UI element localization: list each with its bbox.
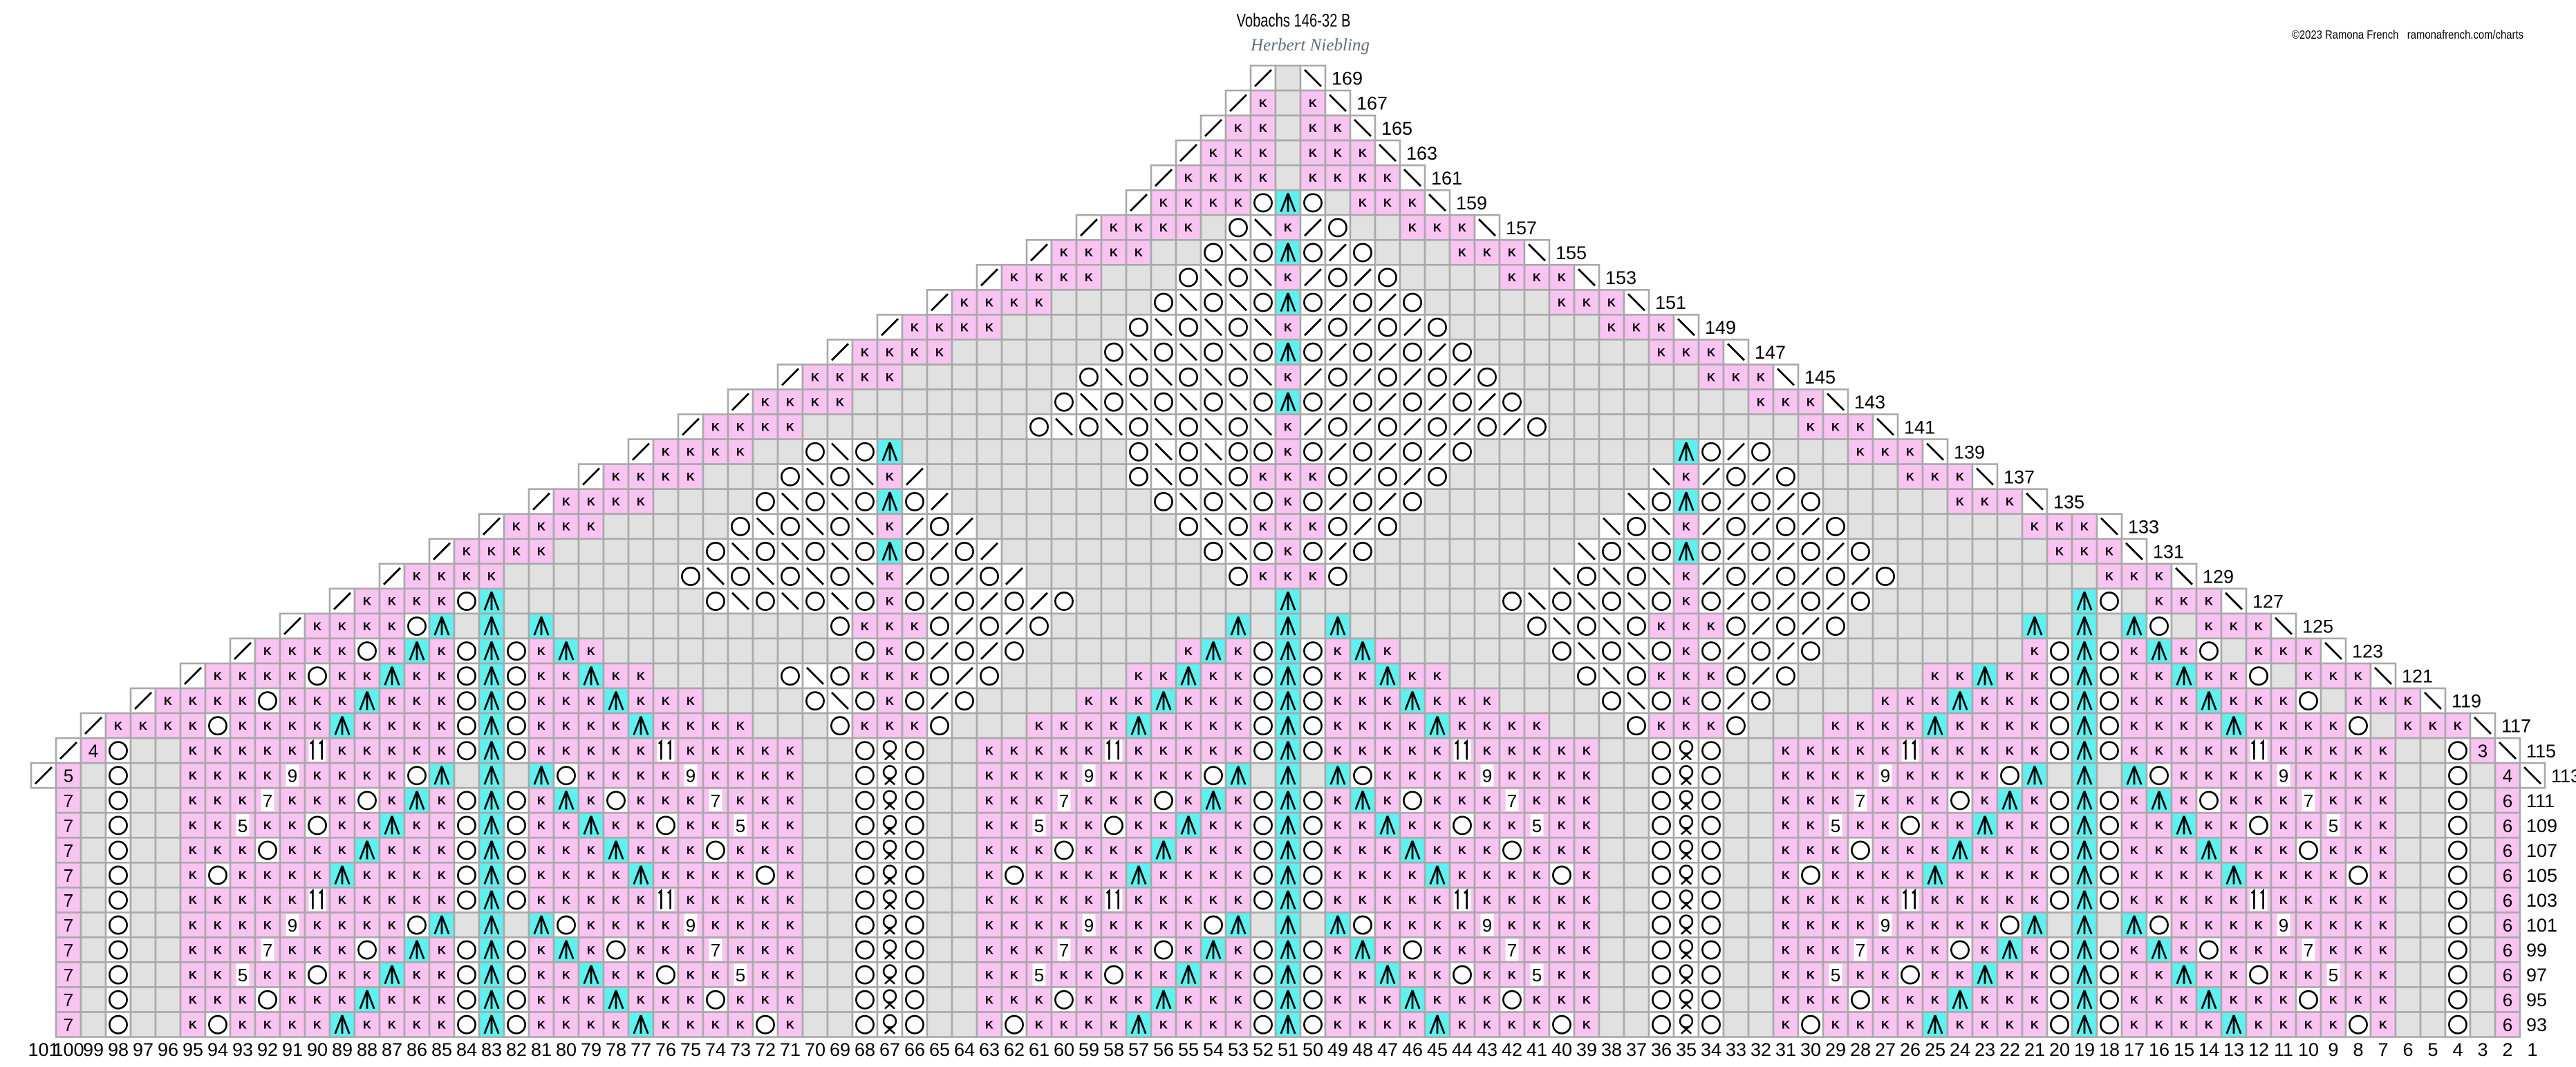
svg-text:K: K xyxy=(413,969,421,981)
svg-text:K: K xyxy=(413,571,421,583)
svg-text:K: K xyxy=(537,844,545,857)
svg-text:K: K xyxy=(1209,197,1217,209)
svg-text:K: K xyxy=(239,720,247,733)
svg-text:K: K xyxy=(413,844,421,857)
svg-text:K: K xyxy=(1807,396,1815,408)
svg-text:K: K xyxy=(463,546,471,558)
svg-text:K: K xyxy=(2329,670,2337,683)
svg-text:K: K xyxy=(1110,1019,1118,1031)
svg-text:K: K xyxy=(288,720,297,733)
svg-text:K: K xyxy=(1408,869,1417,882)
svg-text:K: K xyxy=(1458,695,1466,708)
svg-text:K: K xyxy=(2006,894,2014,907)
svg-text:7: 7 xyxy=(711,940,720,961)
svg-text:K: K xyxy=(1981,944,1989,956)
svg-text:169: 169 xyxy=(1332,68,1363,89)
svg-text:1: 1 xyxy=(2527,1039,2537,1060)
svg-text:K: K xyxy=(1060,247,1068,259)
svg-text:K: K xyxy=(985,795,993,807)
svg-text:72: 72 xyxy=(755,1039,776,1060)
svg-text:K: K xyxy=(214,969,222,981)
svg-text:K: K xyxy=(761,944,769,956)
svg-text:K: K xyxy=(2329,844,2337,857)
svg-text:K: K xyxy=(2230,894,2238,907)
svg-text:K: K xyxy=(1135,795,1143,807)
svg-text:K: K xyxy=(2454,720,2462,733)
svg-text:K: K xyxy=(313,795,321,807)
svg-text:K: K xyxy=(1060,820,1068,832)
svg-text:K: K xyxy=(736,919,745,932)
svg-text:60: 60 xyxy=(1054,1039,1074,1060)
svg-text:35: 35 xyxy=(1676,1039,1697,1060)
svg-text:K: K xyxy=(662,844,670,857)
svg-text:K: K xyxy=(1981,745,1989,757)
svg-text:K: K xyxy=(413,745,421,757)
svg-text:K: K xyxy=(1458,770,1466,782)
svg-text:K: K xyxy=(537,720,545,733)
svg-text:K: K xyxy=(1856,745,1865,757)
svg-text:K: K xyxy=(2255,1019,2263,1031)
svg-text:K: K xyxy=(363,1019,371,1031)
svg-text:K: K xyxy=(2205,670,2213,683)
svg-text:K: K xyxy=(2354,894,2362,907)
svg-text:K: K xyxy=(1284,272,1292,284)
svg-text:K: K xyxy=(1807,422,1815,434)
svg-text:K: K xyxy=(2379,994,2387,1006)
svg-text:K: K xyxy=(1533,869,1541,882)
svg-text:K: K xyxy=(1906,994,1914,1006)
svg-text:K: K xyxy=(388,621,396,633)
svg-text:7: 7 xyxy=(2378,1039,2388,1060)
svg-text:K: K xyxy=(2404,695,2412,708)
svg-text:K: K xyxy=(886,521,894,533)
svg-text:K: K xyxy=(985,1019,993,1031)
svg-text:37: 37 xyxy=(1626,1039,1647,1060)
svg-text:K: K xyxy=(2031,645,2039,658)
svg-text:K: K xyxy=(338,745,346,757)
svg-text:K: K xyxy=(587,695,595,708)
svg-text:K: K xyxy=(786,844,794,857)
svg-text:K: K xyxy=(1483,994,1491,1006)
svg-text:K: K xyxy=(562,994,570,1006)
svg-text:K: K xyxy=(189,869,197,882)
svg-text:K: K xyxy=(736,894,745,907)
svg-text:K: K xyxy=(438,645,446,658)
svg-text:K: K xyxy=(2155,695,2163,708)
svg-text:7: 7 xyxy=(64,940,73,961)
svg-text:K: K xyxy=(363,820,371,832)
svg-text:K: K xyxy=(1558,272,1566,284)
svg-text:6: 6 xyxy=(2503,791,2512,811)
svg-text:K: K xyxy=(2180,695,2188,708)
svg-text:K: K xyxy=(2155,745,2163,757)
svg-text:K: K xyxy=(1831,1019,1840,1031)
svg-text:K: K xyxy=(1931,969,1939,981)
svg-text:K: K xyxy=(288,969,297,981)
svg-text:K: K xyxy=(612,471,620,484)
svg-text:80: 80 xyxy=(556,1039,577,1060)
svg-text:K: K xyxy=(512,546,521,558)
svg-text:K: K xyxy=(1110,795,1118,807)
svg-text:27: 27 xyxy=(1875,1039,1896,1060)
svg-text:K: K xyxy=(1981,919,1989,932)
svg-text:K: K xyxy=(338,820,346,832)
svg-text:K: K xyxy=(1682,645,1690,658)
svg-text:K: K xyxy=(1508,919,1516,932)
svg-text:6: 6 xyxy=(2503,965,2512,985)
svg-text:K: K xyxy=(761,745,769,757)
svg-text:20: 20 xyxy=(2049,1039,2070,1060)
svg-text:K: K xyxy=(2080,521,2089,533)
svg-text:K: K xyxy=(1060,770,1068,782)
svg-text:K: K xyxy=(1583,745,1591,757)
svg-text:K: K xyxy=(687,720,695,733)
svg-text:K: K xyxy=(2255,695,2263,708)
svg-text:K: K xyxy=(2304,645,2313,658)
svg-text:K: K xyxy=(587,496,595,509)
svg-text:K: K xyxy=(2205,720,2213,733)
svg-text:K: K xyxy=(1408,969,1417,981)
svg-text:2: 2 xyxy=(2502,1039,2512,1060)
svg-text:K: K xyxy=(960,296,969,309)
svg-text:101: 101 xyxy=(2526,915,2557,936)
svg-text:K: K xyxy=(388,720,396,733)
svg-text:K: K xyxy=(711,869,720,882)
svg-text:38: 38 xyxy=(1601,1039,1622,1060)
svg-text:K: K xyxy=(1309,172,1317,185)
svg-text:K: K xyxy=(637,795,645,807)
svg-text:K: K xyxy=(587,944,595,956)
svg-text:K: K xyxy=(1284,371,1292,384)
svg-text:62: 62 xyxy=(1004,1039,1025,1060)
svg-text:Herbert Niebling: Herbert Niebling xyxy=(1250,36,1370,55)
svg-text:K: K xyxy=(612,770,620,782)
svg-text:K: K xyxy=(1458,869,1466,882)
svg-text:K: K xyxy=(1583,1019,1591,1031)
svg-text:K: K xyxy=(388,596,396,608)
svg-text:K: K xyxy=(1508,820,1516,832)
svg-text:K: K xyxy=(1682,720,1690,733)
svg-text:K: K xyxy=(711,969,720,981)
svg-text:K: K xyxy=(1408,222,1417,234)
svg-text:K: K xyxy=(413,695,421,708)
svg-text:K: K xyxy=(637,670,645,683)
svg-text:K: K xyxy=(1558,894,1566,907)
svg-text:K: K xyxy=(1558,944,1566,956)
svg-text:7: 7 xyxy=(1507,940,1517,961)
svg-text:8: 8 xyxy=(2353,1039,2363,1060)
svg-text:K: K xyxy=(687,695,695,708)
svg-text:K: K xyxy=(1209,820,1217,832)
svg-text:K: K xyxy=(1732,371,1740,384)
svg-text:K: K xyxy=(537,1019,545,1031)
svg-text:5: 5 xyxy=(1532,965,1542,985)
svg-text:K: K xyxy=(1558,919,1566,932)
svg-text:K: K xyxy=(985,969,993,981)
svg-text:K: K xyxy=(1831,894,1840,907)
svg-text:K: K xyxy=(587,1019,595,1031)
svg-text:K: K xyxy=(761,969,769,981)
svg-text:K: K xyxy=(1558,969,1566,981)
svg-text:74: 74 xyxy=(705,1039,726,1060)
svg-text:K: K xyxy=(711,446,720,459)
svg-text:K: K xyxy=(2329,944,2337,956)
svg-text:K: K xyxy=(935,346,944,359)
svg-text:5: 5 xyxy=(2328,965,2338,985)
svg-text:K: K xyxy=(786,994,794,1006)
svg-text:K: K xyxy=(1906,695,1914,708)
svg-text:K: K xyxy=(1184,197,1193,209)
svg-text:K: K xyxy=(1508,745,1516,757)
svg-text:K: K xyxy=(2379,844,2387,857)
svg-text:K: K xyxy=(1558,820,1566,832)
svg-text:K: K xyxy=(1085,795,1093,807)
svg-text:13: 13 xyxy=(2223,1039,2244,1060)
svg-text:K: K xyxy=(1184,894,1193,907)
svg-text:K: K xyxy=(1458,919,1466,932)
svg-text:K: K xyxy=(1856,894,1865,907)
svg-text:K: K xyxy=(1956,770,1964,782)
svg-text:K: K xyxy=(1856,969,1865,981)
svg-text:K: K xyxy=(2180,770,2188,782)
svg-text:K: K xyxy=(662,869,670,882)
svg-text:K: K xyxy=(1334,172,1342,185)
svg-text:K: K xyxy=(1607,296,1616,309)
svg-text:K: K xyxy=(1483,820,1491,832)
svg-text:K: K xyxy=(2080,546,2089,558)
svg-text:K: K xyxy=(861,720,869,733)
svg-text:K: K xyxy=(2130,1019,2138,1031)
svg-text:K: K xyxy=(637,820,645,832)
svg-text:K: K xyxy=(1010,969,1018,981)
svg-text:K: K xyxy=(438,944,446,956)
svg-text:K: K xyxy=(189,894,197,907)
svg-text:K: K xyxy=(2006,1019,2014,1031)
svg-text:K: K xyxy=(263,1019,272,1031)
svg-text:K: K xyxy=(1782,869,1790,882)
svg-text:K: K xyxy=(1110,770,1118,782)
svg-text:K: K xyxy=(313,919,321,932)
svg-text:K: K xyxy=(438,571,446,583)
svg-text:K: K xyxy=(263,645,272,658)
svg-text:K: K xyxy=(1234,820,1242,832)
svg-text:5: 5 xyxy=(2328,815,2338,836)
svg-text:K: K xyxy=(1433,894,1441,907)
svg-text:K: K xyxy=(1707,670,1715,683)
svg-text:K: K xyxy=(2155,571,2163,583)
svg-text:K: K xyxy=(338,770,346,782)
svg-text:K: K xyxy=(1931,670,1939,683)
svg-text:K: K xyxy=(2255,944,2263,956)
svg-text:K: K xyxy=(612,969,620,981)
svg-text:K: K xyxy=(612,496,620,509)
svg-text:K: K xyxy=(2006,720,2014,733)
svg-text:K: K xyxy=(1060,745,1068,757)
svg-text:63: 63 xyxy=(979,1039,1000,1060)
svg-text:99: 99 xyxy=(2526,940,2547,961)
svg-text:K: K xyxy=(786,770,794,782)
svg-text:K: K xyxy=(388,869,396,882)
svg-text:147: 147 xyxy=(1755,342,1786,363)
svg-text:K: K xyxy=(1234,844,1242,857)
svg-text:K: K xyxy=(1607,321,1616,334)
svg-text:7: 7 xyxy=(64,890,73,911)
svg-text:K: K xyxy=(1707,371,1715,384)
svg-text:K: K xyxy=(2279,745,2288,757)
svg-text:K: K xyxy=(1508,720,1516,733)
svg-text:K: K xyxy=(662,1019,670,1031)
svg-text:K: K xyxy=(1682,571,1690,583)
svg-text:K: K xyxy=(1881,944,1889,956)
svg-text:32: 32 xyxy=(1751,1039,1771,1060)
svg-text:67: 67 xyxy=(879,1039,900,1060)
svg-text:K: K xyxy=(2205,869,2213,882)
svg-text:K: K xyxy=(2304,720,2313,733)
svg-text:K: K xyxy=(1035,1019,1043,1031)
svg-text:K: K xyxy=(1981,720,1989,733)
svg-text:K: K xyxy=(1259,471,1267,484)
svg-text:K: K xyxy=(1035,919,1043,932)
svg-text:84: 84 xyxy=(456,1039,477,1060)
svg-text:K: K xyxy=(1956,496,1964,509)
svg-text:119: 119 xyxy=(2452,691,2481,712)
svg-text:K: K xyxy=(1060,720,1068,733)
svg-text:K: K xyxy=(1856,770,1865,782)
svg-text:K: K xyxy=(2230,820,2238,832)
svg-text:6: 6 xyxy=(2503,815,2512,836)
svg-text:K: K xyxy=(1508,770,1516,782)
svg-text:K: K xyxy=(1284,422,1292,434)
svg-text:K: K xyxy=(2006,745,2014,757)
svg-text:K: K xyxy=(2304,969,2313,981)
svg-text:K: K xyxy=(338,994,346,1006)
svg-text:K: K xyxy=(1284,446,1292,459)
svg-text:K: K xyxy=(1383,944,1392,956)
svg-text:9: 9 xyxy=(1084,915,1094,936)
svg-text:K: K xyxy=(761,894,769,907)
svg-text:K: K xyxy=(985,919,993,932)
svg-text:K: K xyxy=(2155,969,2163,981)
svg-text:K: K xyxy=(288,745,297,757)
svg-text:K: K xyxy=(1110,247,1118,259)
svg-text:K: K xyxy=(189,745,197,757)
svg-text:K: K xyxy=(1508,894,1516,907)
svg-text:91: 91 xyxy=(282,1039,303,1060)
svg-text:K: K xyxy=(2329,720,2337,733)
svg-text:K: K xyxy=(2130,844,2138,857)
svg-text:K: K xyxy=(1159,894,1168,907)
svg-text:93: 93 xyxy=(232,1039,253,1060)
svg-text:K: K xyxy=(2279,969,2288,981)
svg-text:K: K xyxy=(288,645,297,658)
svg-text:K: K xyxy=(1110,844,1118,857)
svg-text:K: K xyxy=(1085,944,1093,956)
svg-text:K: K xyxy=(1135,770,1143,782)
svg-text:K: K xyxy=(1682,695,1690,708)
svg-text:K: K xyxy=(2006,994,2014,1006)
svg-text:K: K xyxy=(1483,795,1491,807)
svg-text:K: K xyxy=(2180,596,2188,608)
svg-text:K: K xyxy=(1458,994,1466,1006)
svg-text:K: K xyxy=(2180,645,2188,658)
svg-text:K: K xyxy=(263,745,272,757)
svg-text:K: K xyxy=(288,820,297,832)
svg-text:K: K xyxy=(1184,222,1193,234)
svg-text:K: K xyxy=(886,695,894,708)
svg-text:K: K xyxy=(2155,894,2163,907)
svg-text:K: K xyxy=(1583,795,1591,807)
svg-text:K: K xyxy=(1433,944,1441,956)
svg-text:K: K xyxy=(1110,720,1118,733)
svg-text:K: K xyxy=(114,720,122,733)
svg-text:K: K xyxy=(1159,919,1168,932)
svg-text:K: K xyxy=(1184,770,1193,782)
svg-text:7: 7 xyxy=(2304,940,2313,961)
svg-text:K: K xyxy=(2130,795,2138,807)
svg-text:K: K xyxy=(214,745,222,757)
svg-text:K: K xyxy=(1035,770,1043,782)
svg-text:K: K xyxy=(662,919,670,932)
svg-text:K: K xyxy=(886,371,894,384)
svg-text:K: K xyxy=(2255,645,2263,658)
svg-text:K: K xyxy=(1209,969,1217,981)
svg-text:K: K xyxy=(587,795,595,807)
svg-text:K: K xyxy=(711,720,720,733)
svg-text:K: K xyxy=(1906,720,1914,733)
svg-text:K: K xyxy=(313,695,321,708)
svg-text:K: K xyxy=(1533,272,1541,284)
svg-text:K: K xyxy=(1881,869,1889,882)
svg-text:K: K xyxy=(711,820,720,832)
svg-text:K: K xyxy=(1807,969,1815,981)
svg-text:K: K xyxy=(2205,919,2213,932)
svg-text:K: K xyxy=(1184,720,1193,733)
svg-text:7: 7 xyxy=(64,791,73,811)
svg-text:K: K xyxy=(2354,994,2362,1006)
svg-text:K: K xyxy=(189,994,197,1006)
svg-text:K: K xyxy=(1184,844,1193,857)
svg-text:40: 40 xyxy=(1551,1039,1572,1060)
svg-text:K: K xyxy=(2230,795,2238,807)
svg-text:85: 85 xyxy=(431,1039,452,1060)
svg-text:54: 54 xyxy=(1203,1039,1224,1060)
svg-text:9: 9 xyxy=(2279,766,2288,786)
svg-text:K: K xyxy=(1334,695,1342,708)
svg-text:K: K xyxy=(1035,720,1043,733)
svg-text:K: K xyxy=(1209,720,1217,733)
svg-text:9: 9 xyxy=(288,766,297,786)
svg-text:K: K xyxy=(1383,197,1392,209)
svg-text:K: K xyxy=(1010,919,1018,932)
svg-text:K: K xyxy=(1831,795,1840,807)
svg-text:41: 41 xyxy=(1527,1039,1547,1060)
svg-text:K: K xyxy=(1284,546,1292,558)
svg-text:K: K xyxy=(2130,894,2138,907)
svg-text:K: K xyxy=(662,471,670,484)
svg-text:K: K xyxy=(1807,919,1815,932)
svg-text:K: K xyxy=(2230,969,2238,981)
svg-text:K: K xyxy=(1657,670,1665,683)
svg-text:K: K xyxy=(338,969,346,981)
svg-text:7: 7 xyxy=(1059,940,1069,961)
svg-text:K: K xyxy=(1583,869,1591,882)
svg-text:K: K xyxy=(1433,222,1441,234)
svg-text:K: K xyxy=(1483,844,1491,857)
svg-text:5: 5 xyxy=(736,965,745,985)
svg-text:K: K xyxy=(1533,894,1541,907)
svg-text:K: K xyxy=(2279,844,2288,857)
svg-text:K: K xyxy=(214,894,222,907)
